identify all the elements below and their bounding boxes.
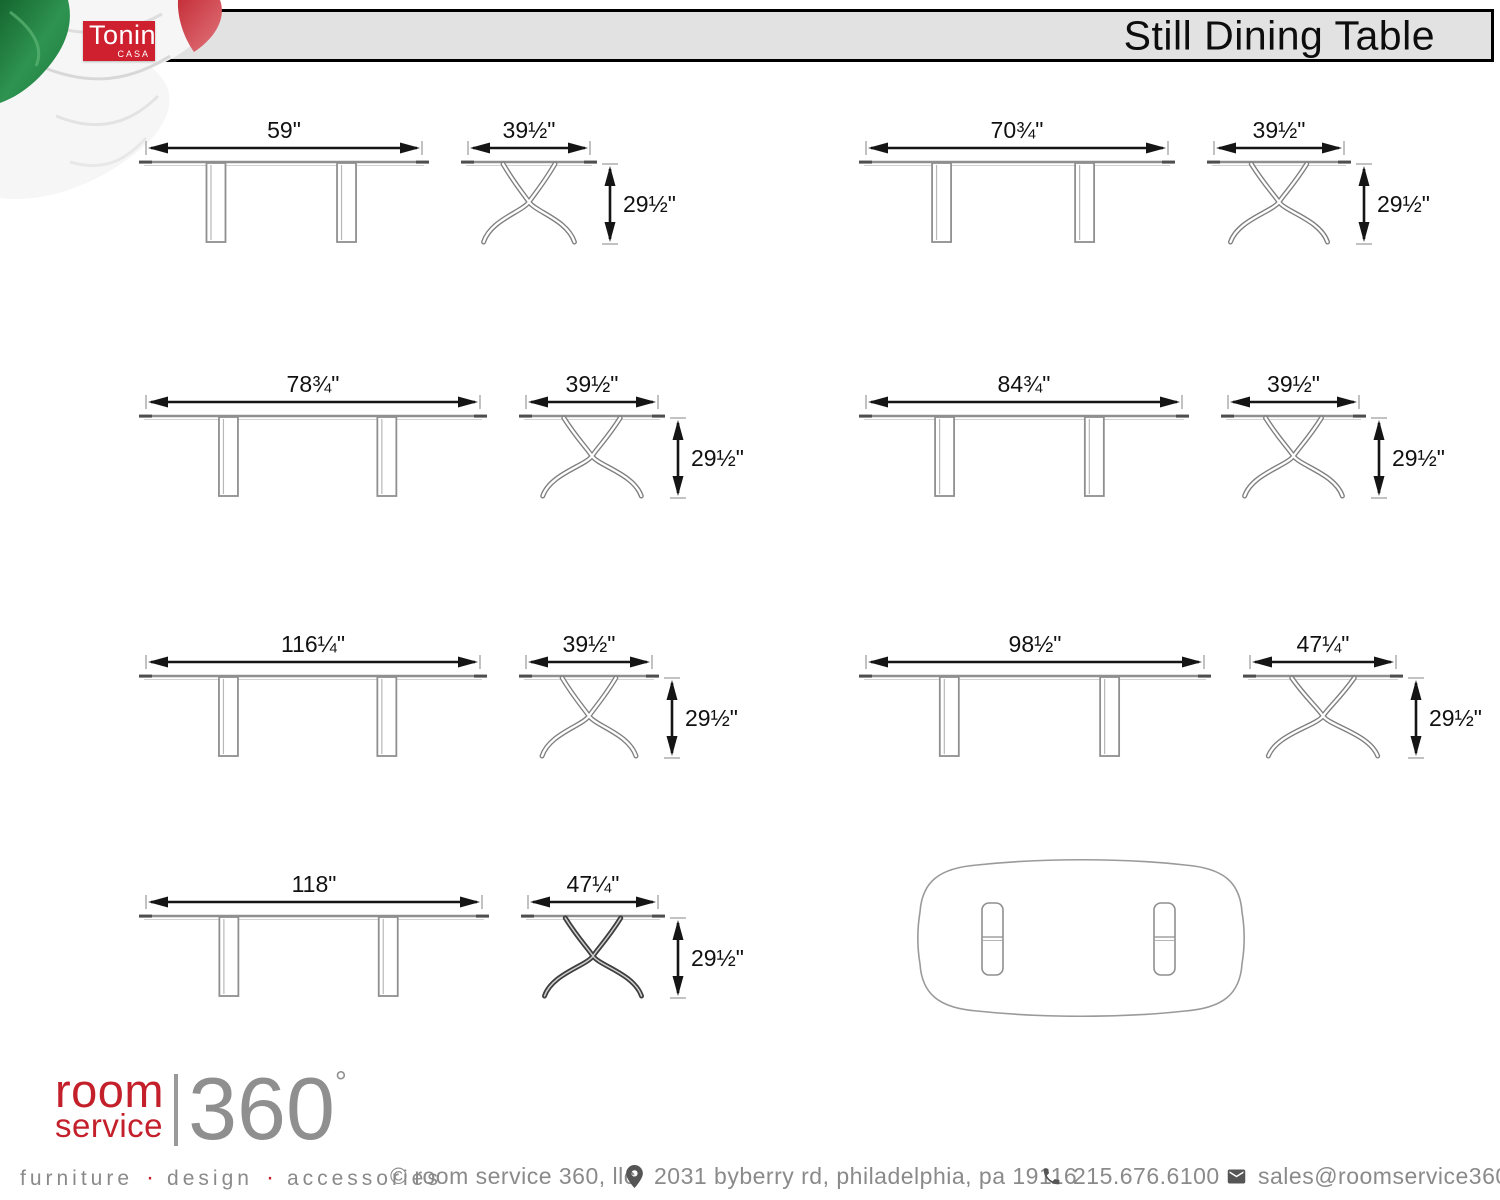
table-top-view-drawing: [897, 850, 1257, 1030]
email-icon: [1226, 1166, 1247, 1187]
tonin-logo-text: Tonin: [89, 20, 156, 51]
depth-dimension: 39½": [526, 371, 658, 409]
height-dimension: 29½": [1408, 678, 1482, 758]
table-variant-4-drawing: 84¾"39½"29½": [848, 366, 1500, 516]
table-variant-1-drawing: 59"39½"29½": [128, 112, 788, 262]
height-dimension: 29½": [670, 918, 744, 998]
depth-dimension-label: 39½": [566, 371, 619, 397]
side-view: [461, 161, 597, 242]
side-view: [521, 915, 665, 996]
front-view: [859, 161, 1175, 242]
front-view: [139, 161, 429, 242]
phone-text: 215.676.6100: [1073, 1163, 1220, 1190]
height-dimension: 29½": [602, 164, 676, 244]
tabletop-outline: [918, 860, 1245, 1017]
side-view: [519, 675, 659, 756]
front-view: [139, 675, 487, 756]
height-dimension-label: 29½": [1377, 191, 1430, 217]
height-dimension: 29½": [664, 678, 738, 758]
front-view: [139, 915, 489, 996]
width-dimension: 70¾": [866, 117, 1168, 155]
width-dimension-label: 78¾": [287, 371, 340, 397]
front-view: [859, 415, 1189, 496]
depth-dimension-label: 47¼": [1297, 631, 1350, 657]
front-view: [859, 675, 1211, 756]
height-dimension: 29½": [1371, 418, 1445, 498]
table-variant-5-drawing: 116¼"39½"29½": [128, 626, 788, 776]
front-view: [139, 415, 487, 496]
logo-tagline: furniture·design·accessories: [20, 1164, 442, 1192]
spec-sheet-page: Still Dining Table Tonin CASA 59"39½"29½…: [0, 0, 1500, 1200]
depth-dimension: 47¼": [528, 871, 658, 909]
logo-divider-bar: [174, 1074, 178, 1146]
height-dimension-label: 29½": [691, 445, 744, 471]
width-dimension-label: 59": [267, 117, 301, 143]
depth-dimension: 39½": [526, 631, 652, 669]
height-dimension-label: 29½": [623, 191, 676, 217]
depth-dimension-label: 39½": [1253, 117, 1306, 143]
table-variant-7-drawing: 118"47¼"29½": [128, 866, 788, 1016]
width-dimension: 78¾": [146, 371, 480, 409]
width-dimension-label: 116¼": [281, 631, 345, 657]
copyright-text: © room service 360, llc: [390, 1163, 636, 1190]
leg-top-view: [982, 903, 1003, 975]
side-view: [519, 415, 665, 496]
roomservice360-logo: room service 360 °: [55, 1072, 347, 1146]
depth-dimension: 47¼": [1250, 631, 1396, 669]
width-dimension-label: 118": [292, 871, 337, 897]
depth-dimension-label: 39½": [563, 631, 616, 657]
tagline-dot: ·: [146, 1164, 154, 1191]
logo-word-service: service: [55, 1110, 164, 1142]
width-dimension: 116¼": [146, 631, 480, 669]
address-text: 2031 byberry rd, philadelphia, pa 19116: [654, 1163, 1077, 1190]
depth-dimension: 39½": [1214, 117, 1344, 155]
email-block: sales@roomservice360.com: [1226, 1163, 1500, 1190]
height-dimension: 29½": [670, 418, 744, 498]
height-dimension-label: 29½": [1429, 705, 1482, 731]
height-dimension: 29½": [1356, 164, 1430, 244]
phone-block: 215.676.6100: [1041, 1163, 1220, 1190]
height-dimension-label: 29½": [685, 705, 738, 731]
side-view: [1207, 161, 1351, 242]
tagline-design: design: [167, 1167, 253, 1190]
side-view: [1243, 675, 1403, 756]
depth-dimension-label: 39½": [1267, 371, 1320, 397]
table-variant-2-drawing: 70¾"39½"29½": [848, 112, 1500, 262]
width-dimension-label: 98½": [1009, 631, 1062, 657]
width-dimension: 59": [146, 117, 422, 155]
height-dimension-label: 29½": [691, 945, 744, 971]
logo-degree-symbol: °: [335, 1074, 347, 1092]
table-variant-3-drawing: 78¾"39½"29½": [128, 366, 788, 516]
side-view: [1221, 415, 1366, 496]
tonin-logo-subtext: CASA: [117, 49, 150, 59]
location-pin-icon: [626, 1165, 643, 1188]
leg-top-view: [1154, 903, 1175, 975]
phone-icon: [1041, 1166, 1062, 1187]
logo-number-360: 360: [188, 1072, 335, 1146]
depth-dimension-label: 47¼": [567, 871, 620, 897]
depth-dimension-label: 39½": [503, 117, 556, 143]
width-dimension: 84¾": [866, 371, 1182, 409]
tonin-casa-logo: Tonin CASA: [83, 21, 155, 61]
width-dimension: 118": [146, 871, 482, 909]
address-block: 2031 byberry rd, philadelphia, pa 19116: [626, 1163, 1077, 1190]
width-dimension-label: 84¾": [998, 371, 1051, 397]
width-dimension: 98½": [866, 631, 1204, 669]
width-dimension-label: 70¾": [991, 117, 1044, 143]
email-text: sales@roomservice360.com: [1258, 1163, 1500, 1190]
tagline-dot: ·: [266, 1164, 274, 1191]
depth-dimension: 39½": [468, 117, 590, 155]
table-variant-6-drawing: 98½"47¼"29½": [848, 626, 1500, 776]
tagline-furniture: furniture: [20, 1167, 133, 1190]
page-title: Still Dining Table: [1124, 12, 1435, 59]
height-dimension-label: 29½": [1392, 445, 1445, 471]
logo-word-room: room: [55, 1072, 164, 1110]
depth-dimension: 39½": [1228, 371, 1359, 409]
